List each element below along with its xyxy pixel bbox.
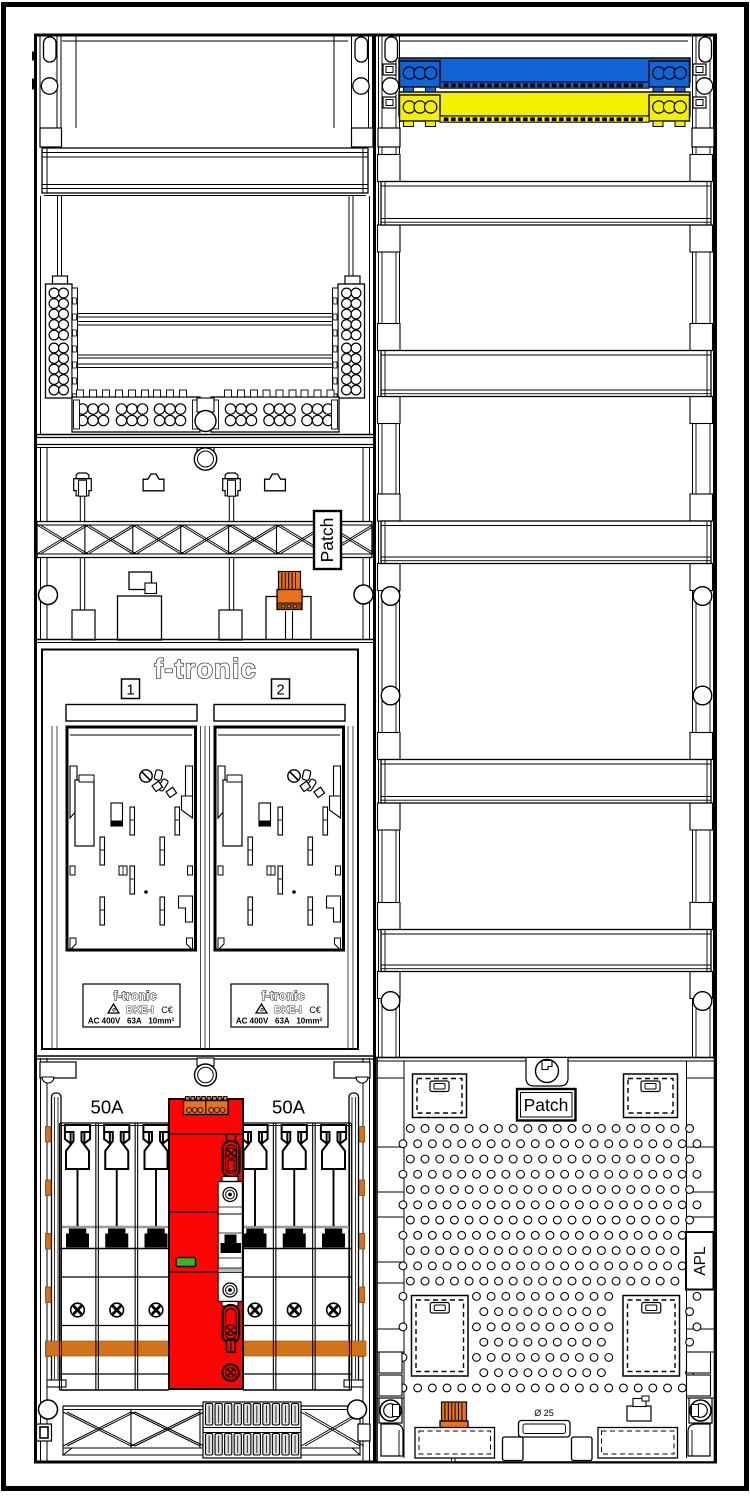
svg-text:Patch: Patch — [317, 518, 337, 563]
svg-text:2: 2 — [276, 682, 284, 699]
svg-text:50A: 50A — [272, 1097, 306, 1118]
svg-text:AC 400V 63A 10mm²: AC 400V 63A 10mm² — [236, 1017, 323, 1026]
svg-text:f-tronic: f-tronic — [154, 653, 257, 684]
svg-text:♻: ♻ — [260, 1008, 265, 1014]
svg-text:C€: C€ — [161, 1005, 173, 1015]
svg-text:♻: ♻ — [112, 1008, 117, 1014]
svg-text:f-tronic: f-tronic — [261, 989, 304, 1003]
svg-text:Ø 25: Ø 25 — [534, 1408, 554, 1418]
svg-text:Patch: Patch — [524, 1095, 569, 1115]
svg-text:AC 400V 63A 10mm²: AC 400V 63A 10mm² — [88, 1017, 175, 1026]
svg-text:1: 1 — [126, 682, 134, 699]
svg-text:BKE-I: BKE-I — [126, 1005, 153, 1016]
svg-text:BKE-I: BKE-I — [274, 1005, 301, 1016]
svg-text:f-tronic: f-tronic — [113, 989, 156, 1003]
svg-text:C€: C€ — [309, 1005, 321, 1015]
svg-text:50A: 50A — [91, 1097, 125, 1118]
svg-text:APL: APL — [692, 1246, 709, 1276]
